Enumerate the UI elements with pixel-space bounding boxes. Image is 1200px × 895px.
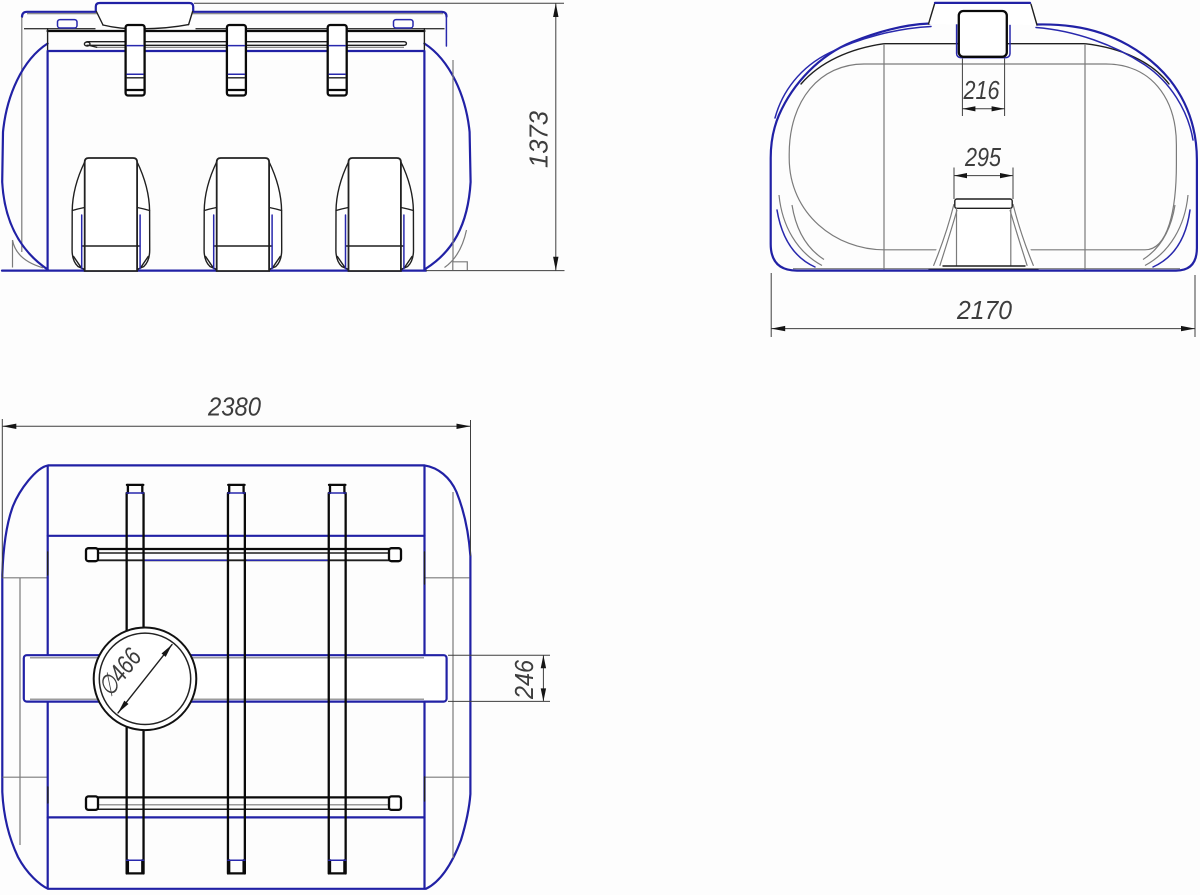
svg-text:1373: 1373 [524, 110, 554, 168]
svg-text:295: 295 [964, 142, 1001, 172]
svg-text:216: 216 [963, 75, 1000, 105]
svg-text:2170: 2170 [956, 295, 1012, 325]
svg-text:246: 246 [509, 660, 539, 700]
svg-text:2380: 2380 [207, 392, 261, 422]
